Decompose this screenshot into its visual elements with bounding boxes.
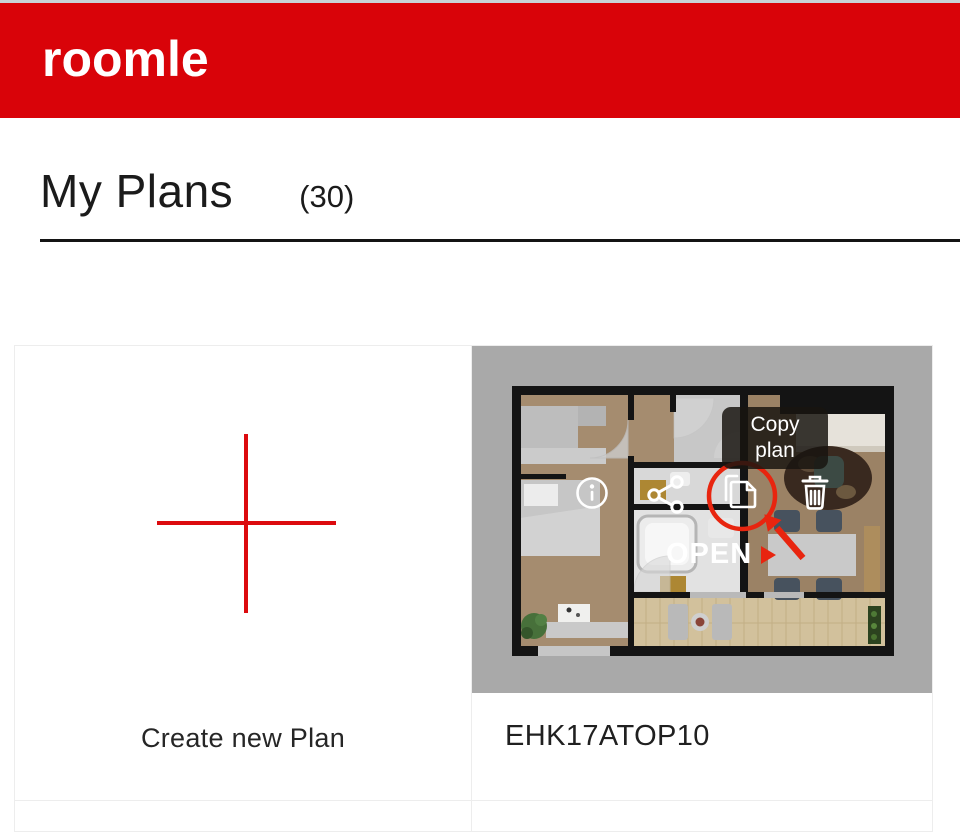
create-plan-label: Create new Plan [15, 723, 471, 754]
plans-grid: Create new Plan [14, 345, 933, 832]
info-icon[interactable] [578, 479, 607, 508]
open-triangle-icon [761, 546, 776, 564]
trash-icon[interactable] [803, 477, 827, 508]
copy-icon[interactable] [726, 476, 755, 507]
annotation-circle [709, 463, 775, 529]
open-label: OPEN [666, 538, 752, 571]
copy-plan-tooltip: Copy plan [722, 407, 828, 469]
share-icon[interactable] [649, 477, 682, 512]
plan-card: Copy plan OPEN EHK17ATOP10 [471, 345, 933, 801]
tooltip-line: plan [722, 438, 828, 464]
next-row-cell [14, 800, 472, 832]
plus-icon[interactable] [157, 521, 336, 525]
plan-title: EHK17ATOP10 [505, 720, 710, 753]
heading-underline [40, 239, 960, 242]
open-button[interactable]: OPEN [666, 538, 776, 571]
roomle-logo[interactable]: roomle [42, 34, 209, 84]
page-title: My Plans [40, 164, 233, 218]
tooltip-line: Copy [722, 412, 828, 438]
page-heading: My Plans (30) [40, 164, 354, 218]
app-header: roomle [0, 3, 960, 118]
plan-thumbnail[interactable]: Copy plan OPEN [472, 346, 932, 693]
next-row-cell [471, 800, 933, 832]
create-new-plan-card[interactable]: Create new Plan [14, 345, 472, 801]
plans-count: (30) [299, 179, 354, 215]
